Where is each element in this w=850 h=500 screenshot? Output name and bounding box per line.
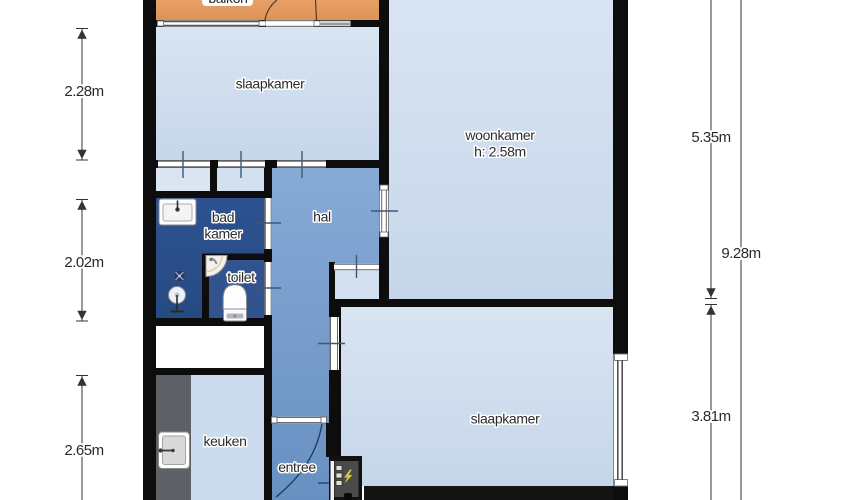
svg-text:keuken: keuken <box>203 433 246 449</box>
svg-text:slaapkamer: slaapkamer <box>471 411 541 427</box>
svg-text:balkon: balkon <box>208 0 247 6</box>
svg-text:h: 2.58m: h: 2.58m <box>474 144 526 160</box>
svg-text:3.81m: 3.81m <box>691 408 730 425</box>
svg-text:woonkamer: woonkamer <box>464 127 535 143</box>
svg-text:hal: hal <box>313 209 331 225</box>
svg-text:kamer: kamer <box>204 226 242 242</box>
svg-text:slaapkamer: slaapkamer <box>236 76 306 92</box>
svg-text:2.65m: 2.65m <box>64 442 103 459</box>
svg-text:2.28m: 2.28m <box>64 83 103 100</box>
svg-text:bad: bad <box>212 209 234 225</box>
svg-text:entree: entree <box>278 459 316 475</box>
svg-text:9.28m: 9.28m <box>721 245 760 262</box>
svg-text:5.35m: 5.35m <box>691 129 730 146</box>
svg-text:2.02m: 2.02m <box>64 254 103 271</box>
svg-text:toilet: toilet <box>227 269 255 285</box>
